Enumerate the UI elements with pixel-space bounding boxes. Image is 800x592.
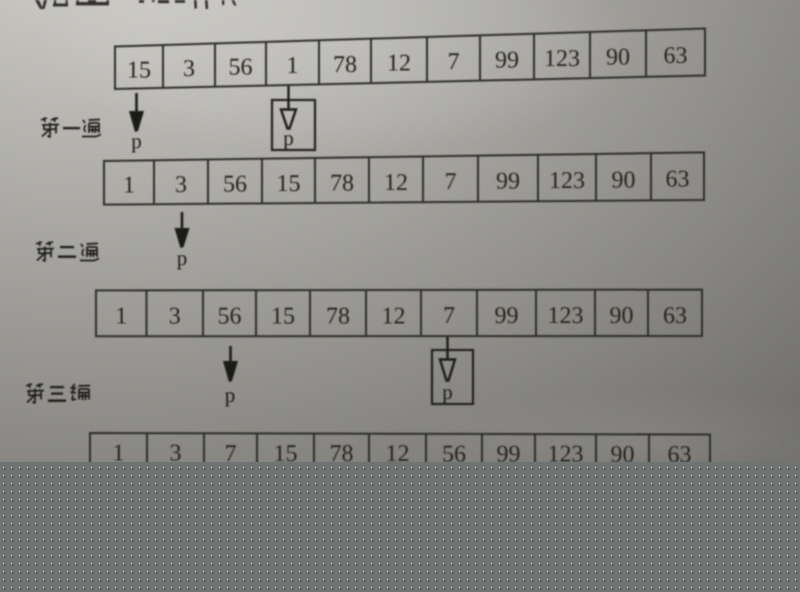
svg-text:p: p <box>283 126 294 150</box>
svg-text:12: 12 <box>382 303 406 329</box>
svg-text:99: 99 <box>496 169 520 195</box>
svg-text:78: 78 <box>333 52 357 78</box>
svg-text:123: 123 <box>544 46 580 72</box>
svg-text:1: 1 <box>123 173 135 199</box>
svg-text:56: 56 <box>223 172 247 198</box>
svg-text:7: 7 <box>443 303 455 329</box>
svg-text:99: 99 <box>495 48 519 74</box>
svg-text:12: 12 <box>384 170 408 196</box>
svg-text:90: 90 <box>606 45 630 71</box>
svg-text:3: 3 <box>175 172 187 198</box>
svg-text:123: 123 <box>548 303 584 329</box>
svg-text:90: 90 <box>612 167 636 193</box>
svg-text:3: 3 <box>183 56 195 82</box>
svg-text:56: 56 <box>229 55 253 81</box>
svg-text:p: p <box>177 246 188 270</box>
svg-text:56: 56 <box>218 303 242 329</box>
svg-text:7: 7 <box>445 169 457 195</box>
svg-text:15: 15 <box>271 303 295 329</box>
svg-text:90: 90 <box>610 303 634 329</box>
svg-text:p: p <box>225 383 236 407</box>
svg-text:1: 1 <box>115 304 127 330</box>
svg-text:99: 99 <box>495 303 519 329</box>
svg-text:15: 15 <box>277 171 301 197</box>
svg-text:63: 63 <box>664 43 688 69</box>
svg-text:p: p <box>131 129 142 153</box>
svg-text:12: 12 <box>387 50 411 76</box>
svg-text:15: 15 <box>127 57 151 83</box>
svg-text:78: 78 <box>326 303 350 329</box>
svg-text:78: 78 <box>330 170 354 196</box>
svg-text:63: 63 <box>666 167 690 193</box>
svg-text:7: 7 <box>448 49 460 75</box>
svg-text:63: 63 <box>663 303 687 329</box>
svg-text:1: 1 <box>287 53 299 79</box>
svg-text:p: p <box>442 380 453 404</box>
svg-text:3: 3 <box>169 304 181 330</box>
svg-text:123: 123 <box>549 168 585 194</box>
